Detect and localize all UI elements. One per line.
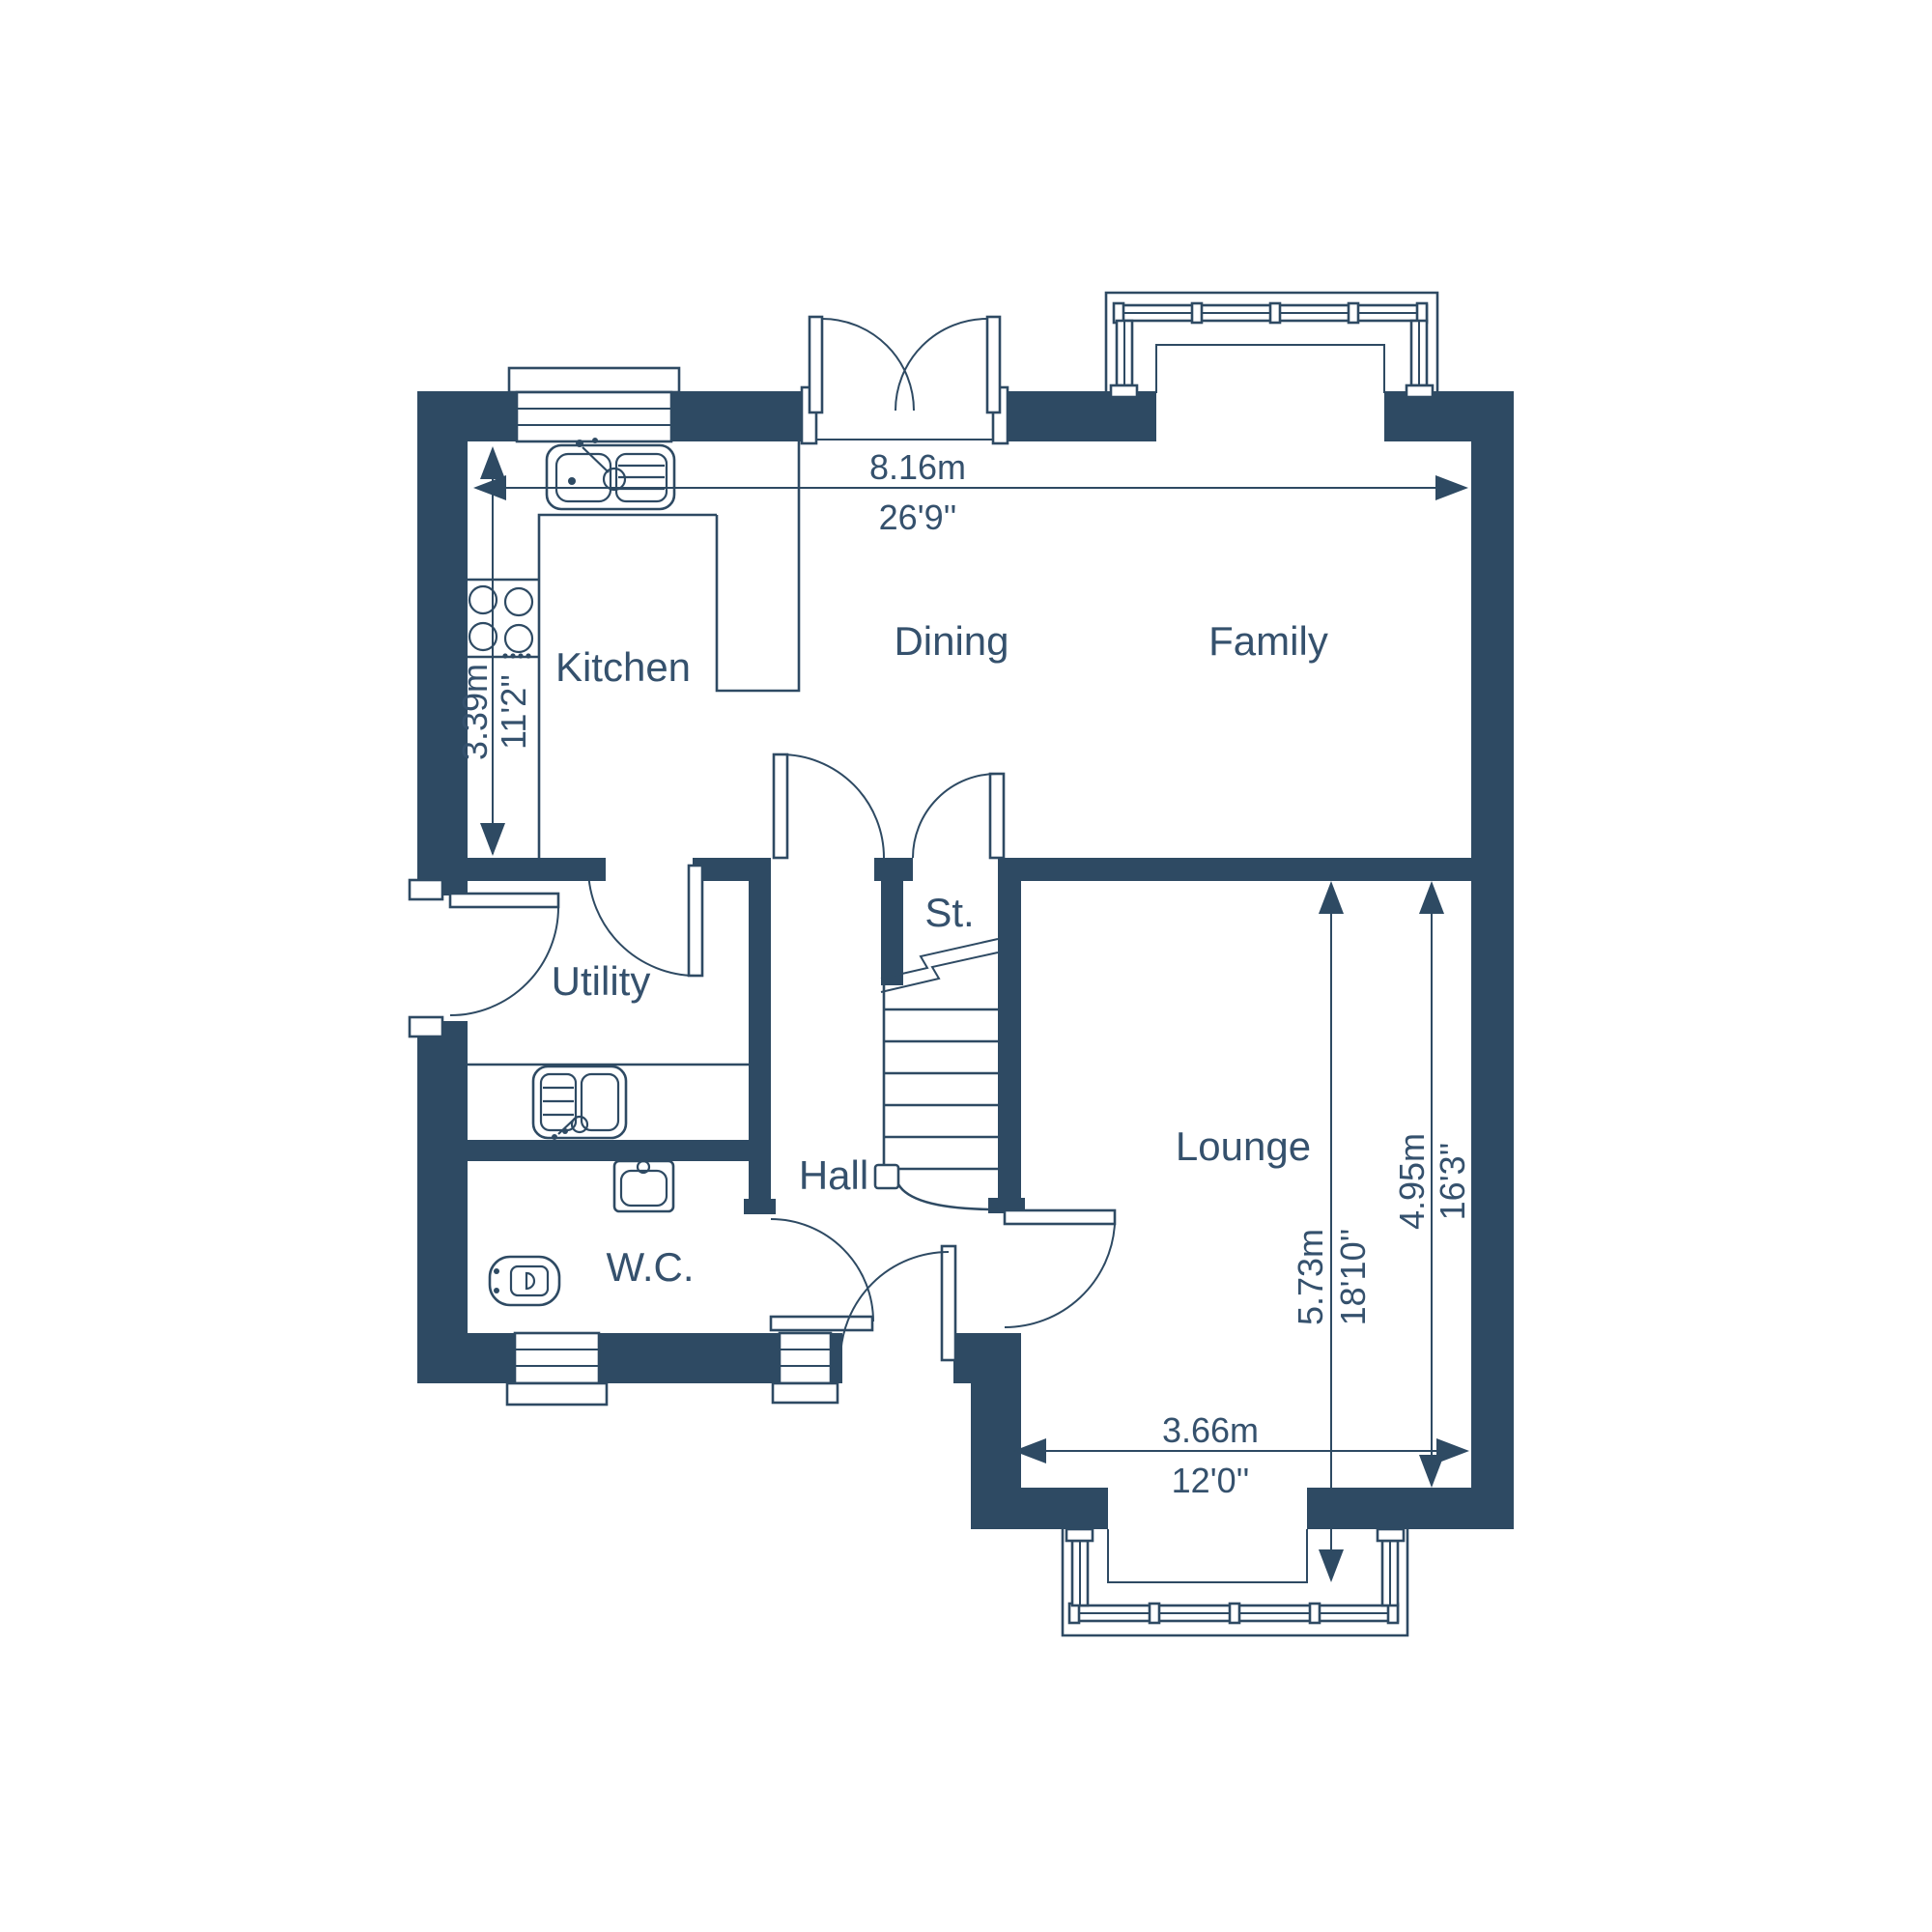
door-leaf xyxy=(774,754,787,858)
stairs-newel-post xyxy=(875,1165,898,1188)
room-label-store: St. xyxy=(924,890,974,935)
utility-sink-icon xyxy=(533,1066,626,1140)
wall-right xyxy=(1471,441,1514,1529)
store-door xyxy=(913,774,1004,858)
bay-inner-line xyxy=(1108,1529,1307,1582)
wall-bottom-2 xyxy=(599,1333,780,1383)
dim-metric: 8.16m xyxy=(869,447,966,487)
wall-hall-left xyxy=(749,881,771,1212)
door-swing xyxy=(1005,1224,1115,1327)
stairs-treads xyxy=(884,1009,998,1169)
door-swing-left xyxy=(822,319,914,411)
wall-lounge-bottom-left xyxy=(971,1488,1108,1529)
door-leaf xyxy=(1005,1210,1115,1224)
dim-imperial: 16'3'' xyxy=(1433,1143,1472,1221)
hall-dining-door xyxy=(774,754,884,858)
dim-imperial: 12'0'' xyxy=(1172,1461,1250,1500)
wall-left-lower xyxy=(417,1021,468,1383)
wall-stairs-right xyxy=(998,858,1021,1210)
door-leaf xyxy=(942,1246,955,1360)
room-label-family: Family xyxy=(1208,618,1328,664)
counter-edge-peninsula xyxy=(717,441,799,691)
door-swing xyxy=(771,1219,873,1321)
floorplan-canvas: 8.16m 26'9'' 3.39m 11'2'' 5.73m 18'10'' … xyxy=(0,0,1932,1932)
wall-left-upper xyxy=(417,391,468,895)
wall-stairs-left xyxy=(881,858,903,985)
dim-metric: 3.39m xyxy=(455,664,495,760)
door-leaf-left xyxy=(810,317,822,412)
wall-bottom-3 xyxy=(953,1333,1021,1383)
room-label-wc: W.C. xyxy=(607,1244,695,1290)
kitchen-sink-icon xyxy=(547,438,674,509)
dim-metric: 3.66m xyxy=(1162,1410,1259,1450)
hall-window xyxy=(773,1333,838,1403)
dim-metric: 4.95m xyxy=(1392,1133,1432,1230)
wall-lounge-bottom-right xyxy=(1307,1488,1514,1529)
room-label-hall: Hall xyxy=(799,1152,868,1198)
dim-arrow-top xyxy=(1319,881,1344,914)
room-label-dining: Dining xyxy=(894,618,1009,664)
lounge-bay-window xyxy=(1063,1529,1407,1635)
front-door xyxy=(840,1246,955,1360)
hob-icon xyxy=(469,586,532,659)
bay-inner-line xyxy=(1156,345,1384,393)
door-leaf xyxy=(689,866,702,976)
dim-arrow-bottom xyxy=(480,823,505,856)
door-swing xyxy=(840,1252,949,1360)
wall-top-4 xyxy=(1384,391,1514,441)
family-bay-window xyxy=(1106,293,1437,397)
dim-arrow-top xyxy=(1419,881,1444,914)
dim-arrow-top xyxy=(480,446,505,479)
wall-wc-top xyxy=(468,1140,771,1161)
door-jamb-bottom xyxy=(410,1017,442,1037)
wall-bottom-1 xyxy=(417,1333,515,1383)
dim-imperial: 11'2'' xyxy=(494,674,533,750)
wall-utility-top-right xyxy=(693,858,771,881)
door-swing-right xyxy=(895,319,987,411)
window-sill xyxy=(509,368,679,392)
window-sill xyxy=(507,1383,607,1405)
french-doors xyxy=(802,317,1008,443)
bay-pad-left xyxy=(1066,1529,1093,1541)
wall-top-3 xyxy=(1008,391,1156,441)
dim-imperial: 18'10'' xyxy=(1333,1229,1373,1326)
dim-lounge-width: 3.66m 12'0'' xyxy=(1013,1410,1469,1500)
toilet-icon xyxy=(490,1257,559,1305)
dim-imperial: 26'9'' xyxy=(879,497,957,537)
window-frame xyxy=(780,1333,831,1383)
dim-arrow-right xyxy=(1436,1438,1469,1463)
dim-metric: 5.73m xyxy=(1291,1229,1330,1325)
room-label-utility: Utility xyxy=(552,958,651,1004)
bay-pad-right xyxy=(1406,385,1433,397)
dim-lounge-depth: 4.95m 16'3'' xyxy=(1392,881,1472,1488)
door-leaf-right xyxy=(987,317,1000,412)
dim-arrow-bottom xyxy=(1319,1549,1344,1582)
window-sill xyxy=(773,1383,838,1403)
dim-lounge-depth-overall: 5.73m 18'10'' xyxy=(1291,881,1373,1582)
window-frame xyxy=(515,1333,599,1383)
door-leaf xyxy=(990,774,1004,858)
room-label-lounge: Lounge xyxy=(1176,1123,1311,1169)
wall-top-2 xyxy=(671,391,810,441)
wall-utility-top xyxy=(468,858,606,881)
door-swing xyxy=(450,907,558,1015)
wall-lounge-top xyxy=(1021,858,1471,881)
door-swing xyxy=(913,774,997,858)
lounge-door xyxy=(1005,1210,1115,1327)
bay-pad-right xyxy=(1378,1529,1404,1541)
bay-pad-left xyxy=(1111,385,1137,397)
door-leaf xyxy=(771,1317,872,1330)
door-leaf xyxy=(450,894,558,907)
floorplan-page: 8.16m 26'9'' 3.39m 11'2'' 5.73m 18'10'' … xyxy=(0,0,1932,1932)
utility-external-door xyxy=(410,880,558,1037)
window-frame xyxy=(517,392,671,441)
door-jamb-top xyxy=(410,880,442,899)
room-label-kitchen: Kitchen xyxy=(555,644,691,690)
wc-window xyxy=(507,1333,607,1405)
wc-door xyxy=(771,1219,873,1330)
stairs-bottom-curve xyxy=(898,1184,998,1209)
jamb-wc-door xyxy=(744,1199,776,1214)
door-swing xyxy=(781,754,884,858)
dim-arrow-right xyxy=(1435,475,1468,500)
kitchen-window xyxy=(509,368,679,441)
